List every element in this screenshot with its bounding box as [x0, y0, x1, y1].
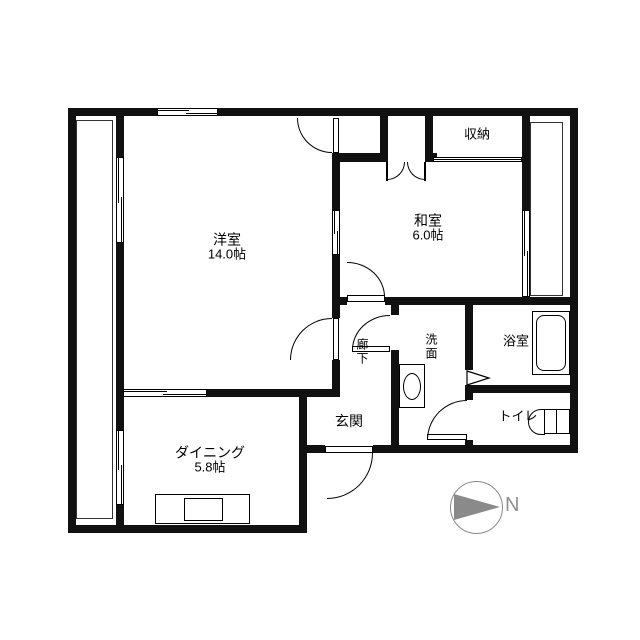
door-leaf: [333, 118, 339, 153]
wall-segment: [68, 108, 157, 116]
toilet-tank-divider: [556, 409, 557, 434]
wall-segment: [68, 525, 307, 533]
wall-segment: [307, 445, 325, 453]
wall-segment: [207, 389, 340, 397]
wall-segment: [465, 297, 473, 370]
wall-segment: [116, 116, 124, 157]
wall-segment: [465, 385, 578, 393]
door-swing-arc: [327, 453, 373, 499]
door-leaf: [333, 318, 339, 360]
toilet-tank: [544, 409, 570, 434]
door-swing-arc: [297, 118, 332, 153]
floorplan: 洋室 14.0帖 和室 6.0帖 ダイニング 5.8帖 収納 浴室 トイレ 玄関…: [0, 0, 640, 640]
sliding-door: [332, 210, 340, 255]
room-label-hallway: 廊下: [356, 338, 368, 366]
door-swing-arc: [290, 318, 332, 360]
window: [157, 108, 218, 116]
balcony-left: [76, 120, 113, 519]
room-label-dining: ダイニング 5.8帖: [175, 444, 245, 475]
room-label-washroom: 洗面: [425, 333, 437, 361]
room-label-entrance: 玄関: [335, 413, 363, 429]
kitchen-sink: [184, 498, 223, 521]
wall-segment: [332, 255, 340, 318]
wall-segment: [218, 108, 578, 116]
room-label-storage: 収納: [464, 128, 490, 143]
sliding-door: [433, 157, 522, 162]
wall-segment: [391, 350, 399, 453]
window: [116, 430, 124, 505]
wall-segment: [373, 445, 578, 453]
balcony-right: [530, 122, 563, 296]
wall-segment: [385, 297, 578, 305]
door-swing-arc: [347, 262, 385, 297]
door-swing-arc: [427, 400, 467, 440]
wall-segment: [299, 389, 307, 525]
wall-segment: [332, 297, 347, 305]
wall-segment: [116, 505, 124, 525]
compass-north-label: N: [505, 494, 519, 517]
window: [116, 157, 124, 243]
compass-north-arrow-icon: [454, 494, 500, 520]
room-label-japanese: 和室 6.0帖: [412, 212, 443, 243]
room-label-bathroom: 浴室: [503, 335, 529, 350]
washbasin-bowl: [403, 373, 421, 400]
wall-segment: [68, 108, 76, 533]
wall-segment: [116, 243, 124, 430]
bathtub-inner: [536, 315, 566, 371]
door-swing-arc: [387, 162, 405, 180]
room-label-western: 洋室 14.0帖: [208, 231, 246, 262]
sliding-door: [123, 389, 207, 397]
wall-segment: [332, 153, 387, 162]
door-swing-arc: [407, 162, 425, 180]
room-label-toilet: トイレ: [498, 410, 537, 425]
wall-segment: [570, 108, 578, 453]
entrance-door-leaf: [325, 446, 373, 453]
wall-segment: [522, 116, 530, 210]
wall-segment: [465, 440, 473, 453]
window: [522, 210, 530, 297]
